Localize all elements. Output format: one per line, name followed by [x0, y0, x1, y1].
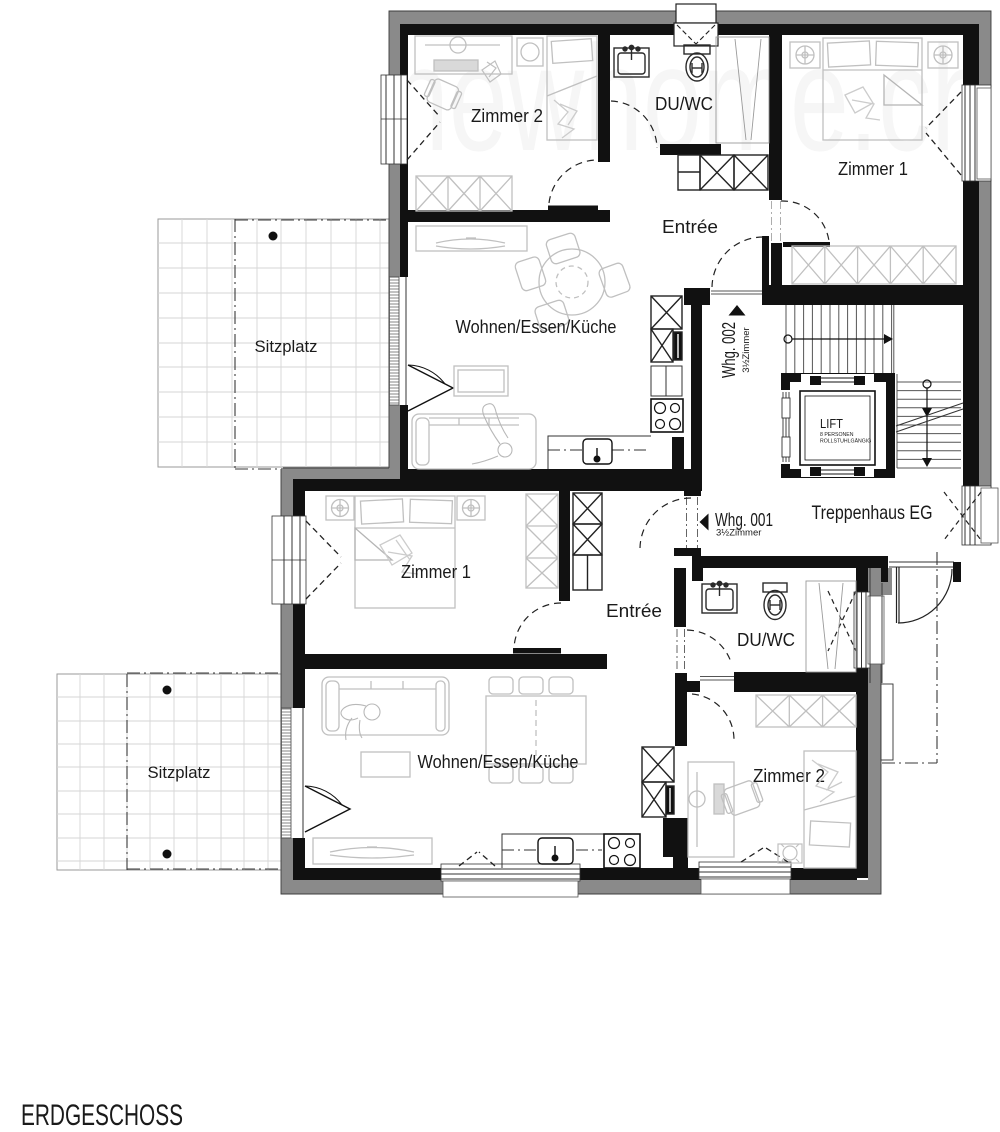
svg-text:Zimmer 1: Zimmer 1	[401, 562, 471, 582]
svg-text:Treppenhaus EG: Treppenhaus EG	[812, 502, 933, 524]
svg-text:DU/WC: DU/WC	[655, 94, 713, 114]
svg-text:Entrée: Entrée	[606, 601, 662, 621]
svg-text:Zimmer 1: Zimmer 1	[838, 159, 908, 179]
svg-text:ROLLSTUHLGÄNGIG: ROLLSTUHLGÄNGIG	[820, 438, 871, 445]
svg-text:3½Zimmer: 3½Zimmer	[716, 528, 761, 539]
svg-text:Zimmer 2: Zimmer 2	[753, 766, 825, 786]
svg-text:ERDGESCHOSS: ERDGESCHOSS	[21, 1099, 183, 1132]
svg-text:Entrée: Entrée	[662, 217, 718, 237]
svg-text:Whg. 002: Whg. 002	[719, 322, 739, 378]
svg-text:Sitzplatz: Sitzplatz	[255, 337, 318, 356]
svg-text:Sitzplatz: Sitzplatz	[148, 763, 211, 782]
svg-text:Wohnen/Essen/Küche: Wohnen/Essen/Küche	[456, 316, 617, 337]
svg-text:3½Zimmer: 3½Zimmer	[741, 327, 752, 372]
svg-text:DU/WC: DU/WC	[737, 630, 795, 650]
svg-text:8 PERSONEN: 8 PERSONEN	[820, 432, 854, 438]
svg-text:Zimmer 2: Zimmer 2	[471, 106, 543, 126]
svg-text:LIFT: LIFT	[820, 416, 843, 431]
svg-text:Wohnen/Essen/Küche: Wohnen/Essen/Küche	[418, 751, 579, 772]
